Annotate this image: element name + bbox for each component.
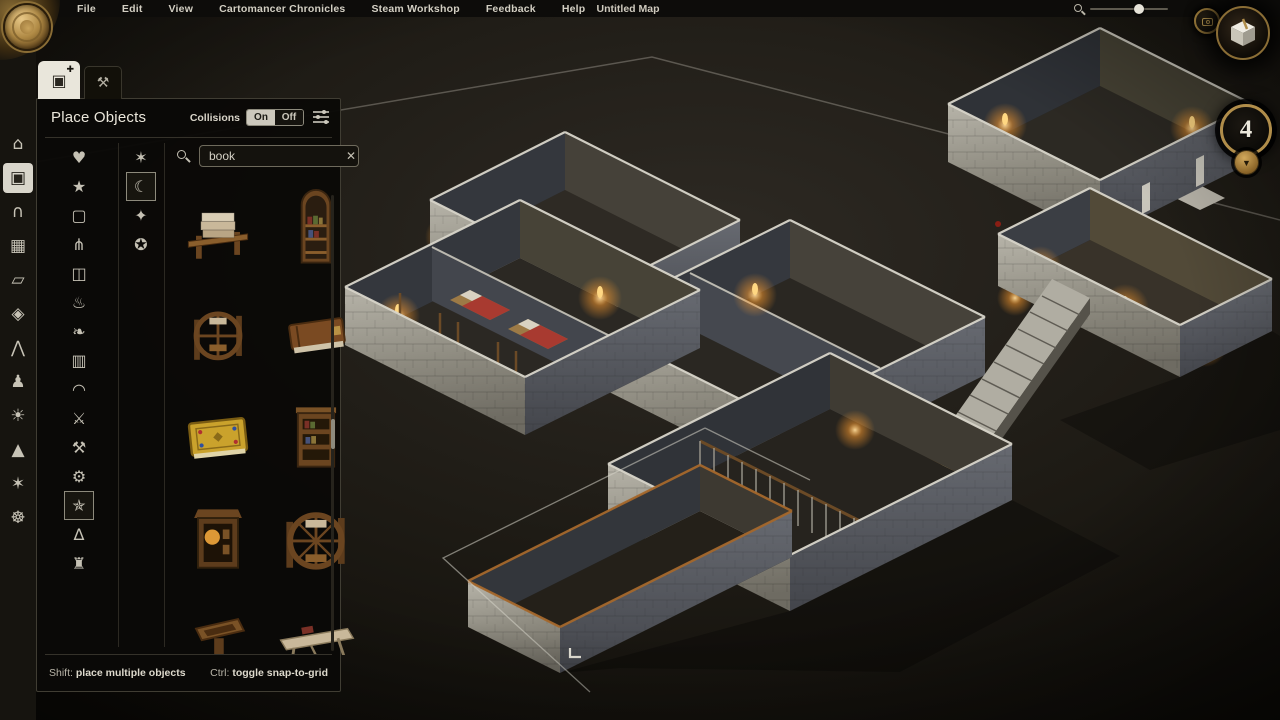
subcategory-magic-tables-icon: ✶ — [134, 148, 147, 167]
windows-tool-icon: ▦ — [10, 236, 26, 256]
chevron-down-icon: ▼ — [1242, 158, 1251, 168]
category-favorites-icon: ♥ — [72, 148, 86, 167]
category-frames[interactable]: ▢ — [64, 201, 94, 230]
category-magic[interactable]: ✯ — [64, 491, 94, 520]
divider — [45, 137, 332, 138]
object-book-wheel-large-thumbnail — [273, 497, 359, 583]
search-row: ✕ — [169, 143, 365, 171]
filter-button[interactable] — [310, 109, 332, 127]
category-treasury-icon: ▥ — [71, 351, 86, 370]
menu-item-feedback[interactable]: Feedback — [473, 0, 549, 17]
subcategory-crystal-balls[interactable]: ☾ — [126, 172, 156, 201]
category-machines-icon: ⚙ — [72, 467, 86, 486]
category-column: ♥★▢⋔◫♨❧▥◠⚔⚒⚙✯∆♜ — [47, 143, 111, 578]
compass-tool-icon: ☸ — [10, 508, 25, 528]
terrain-tool[interactable]: ▲ — [3, 435, 33, 465]
category-ruins-icon: ♜ — [72, 554, 86, 573]
place-objects-tab-icon: ▣ — [51, 71, 66, 90]
menu-item-view[interactable]: View — [156, 0, 207, 17]
category-plants-icon: ❧ — [72, 322, 85, 341]
floors-tool-icon: ▱ — [11, 270, 24, 290]
object-bookshelf-tower[interactable] — [270, 389, 362, 485]
zoom-slider-track[interactable] — [1090, 8, 1168, 10]
object-book-cabinet[interactable] — [172, 492, 264, 588]
category-new[interactable]: ★ — [64, 172, 94, 201]
category-treasury[interactable]: ▥ — [64, 346, 94, 375]
collisions-off-option[interactable]: Off — [275, 110, 303, 125]
scrollbar-thumb[interactable] — [331, 419, 335, 449]
object-book-stack-stand-thumbnail — [175, 188, 261, 274]
place-objects-panel: Place Objects Collisions On Off ♥★▢⋔◫♨❧▥… — [36, 98, 341, 692]
characters-tool-icon: ♟ — [10, 372, 25, 392]
windows-tool[interactable]: ▦ — [3, 231, 33, 261]
floor-number: 4 — [1240, 116, 1253, 144]
subcategory-magic-pedestals[interactable]: ✪ — [126, 230, 156, 259]
object-golden-tome-thumbnail — [175, 394, 261, 480]
objects-tool[interactable]: ▣ — [3, 163, 33, 193]
category-lighting[interactable]: ♨ — [64, 288, 94, 317]
terrain-tool-icon: ▲ — [11, 440, 24, 460]
subcategory-magic-frames-icon: ✦ — [134, 206, 147, 225]
menu-bar: FileEditViewCartomancer ChroniclesSteam … — [0, 0, 1280, 17]
add-icon: ✚ — [66, 65, 74, 75]
ctrl-hint: Ctrl: toggle snap-to-grid — [210, 667, 328, 679]
object-book-stack-stand[interactable] — [172, 183, 264, 279]
map-editor-app: FileEditViewCartomancer ChroniclesSteam … — [0, 0, 1280, 720]
view-cube-button[interactable] — [1216, 6, 1270, 60]
zoom-slider-knob[interactable] — [1134, 4, 1144, 14]
collisions-toggle[interactable]: On Off — [246, 109, 304, 126]
tool-sidebar: ⌂▣∩▦▱◈⋀♟☀▲✶☸ — [0, 17, 36, 720]
object-book-bench[interactable] — [270, 595, 362, 656]
category-ruins[interactable]: ♜ — [64, 549, 94, 578]
object-book-bench-thumbnail — [273, 600, 359, 656]
characters-tool[interactable]: ♟ — [3, 367, 33, 397]
floor-selector: 4 ▼ — [1220, 104, 1276, 180]
object-search-input[interactable] — [199, 145, 359, 167]
tiles-tool[interactable]: ◈ — [3, 299, 33, 329]
tab-place-objects[interactable]: ▣ ✚ — [38, 61, 80, 99]
lighting-tool-icon: ☀ — [10, 406, 25, 426]
divider — [164, 143, 165, 647]
object-grid — [169, 179, 365, 655]
floors-tool[interactable]: ▱ — [3, 265, 33, 295]
subcategory-crystal-balls-icon: ☾ — [134, 177, 148, 196]
map-title: Untitled Map — [548, 0, 708, 17]
category-butchery[interactable]: ⚔ — [64, 404, 94, 433]
object-closed-tome[interactable] — [270, 286, 362, 382]
category-illusions-icon: ∆ — [74, 525, 85, 544]
object-arched-bookcase[interactable] — [270, 183, 362, 279]
doors-tool-icon: ∩ — [12, 202, 24, 222]
hint-bar: Shift: place multiple objects Ctrl: togg… — [37, 655, 340, 691]
subcategory-column: ✶☾✦✪ — [123, 143, 159, 259]
category-new-icon: ★ — [72, 177, 86, 196]
category-illusions[interactable]: ∆ — [64, 520, 94, 549]
category-kitchen-icon: ⋔ — [72, 235, 85, 254]
object-golden-tome[interactable] — [172, 389, 264, 485]
roofs-tool-icon: ⋀ — [11, 338, 25, 358]
object-book-wheel-small-thumbnail — [175, 291, 261, 377]
floor-collapse-button[interactable]: ▼ — [1234, 150, 1259, 175]
search-icon — [1074, 4, 1082, 12]
rooms-tool[interactable]: ⌂ — [3, 129, 33, 159]
menu-item-steam-workshop[interactable]: Steam Workshop — [358, 0, 472, 17]
category-kitchen[interactable]: ⋔ — [64, 230, 94, 259]
subcategory-magic-tables[interactable]: ✶ — [126, 143, 156, 172]
category-butchery-icon: ⚔ — [72, 409, 86, 428]
objects-tool-icon: ▣ — [10, 168, 26, 188]
collisions-on-option[interactable]: On — [247, 110, 275, 125]
menu-items: FileEditViewCartomancer ChroniclesSteam … — [64, 0, 598, 17]
edit-terrain-tab-icon: ⚒ — [97, 75, 110, 91]
panel-title: Place Objects — [51, 109, 146, 126]
object-closed-tome-thumbnail — [273, 291, 359, 377]
lighting-tool[interactable]: ☀ — [3, 401, 33, 431]
category-frames-icon: ▢ — [71, 206, 86, 225]
category-favorites[interactable]: ♥ — [64, 143, 94, 172]
collisions-label: Collisions — [190, 112, 240, 124]
object-lectern-thumbnail — [175, 600, 261, 656]
search-icon — [177, 150, 186, 159]
object-bookshelf-tower-thumbnail — [273, 394, 359, 480]
logo-medallion-icon — [3, 3, 51, 51]
orientation-cube-icon — [1227, 17, 1259, 49]
category-smithy[interactable]: ⚒ — [64, 433, 94, 462]
compass-tool[interactable]: ☸ — [3, 503, 33, 533]
effects-tool-icon: ✶ — [11, 474, 25, 494]
menu-item-edit[interactable]: Edit — [109, 0, 156, 17]
menu-item-cartomancer-chronicles[interactable]: Cartomancer Chronicles — [206, 0, 358, 17]
object-book-wheel-large[interactable] — [270, 492, 362, 588]
category-fireplaces[interactable]: ◠ — [64, 375, 94, 404]
tiles-tool-icon: ◈ — [11, 304, 24, 324]
shift-hint: Shift: place multiple objects — [49, 667, 186, 679]
subcategory-magic-pedestals-icon: ✪ — [134, 235, 147, 254]
zoom-slider[interactable] — [1090, 0, 1190, 17]
panel-tabs: ▣ ✚ ⚒ — [38, 61, 122, 99]
object-arched-bookcase-thumbnail — [273, 188, 359, 274]
object-grid-scrollbar[interactable] — [331, 195, 334, 651]
category-magic-icon: ✯ — [72, 496, 85, 515]
floor-badge[interactable]: 4 — [1220, 104, 1272, 156]
category-fireplaces-icon: ◠ — [72, 380, 86, 399]
category-lighting-icon: ♨ — [72, 293, 86, 312]
subcategory-magic-frames[interactable]: ✦ — [126, 201, 156, 230]
object-book-wheel-small[interactable] — [172, 286, 264, 382]
object-lectern[interactable] — [172, 595, 264, 656]
divider — [118, 143, 119, 647]
category-furniture-icon: ◫ — [71, 264, 86, 283]
category-furniture[interactable]: ◫ — [64, 259, 94, 288]
object-book-cabinet-thumbnail — [175, 497, 261, 583]
category-machines[interactable]: ⚙ — [64, 462, 94, 491]
tab-edit-terrain[interactable]: ⚒ — [84, 66, 122, 99]
category-smithy-icon: ⚒ — [72, 438, 86, 457]
tool-list: ⌂▣∩▦▱◈⋀♟☀▲✶☸ — [0, 127, 36, 535]
clear-search-button[interactable]: ✕ — [343, 148, 359, 164]
doors-tool[interactable]: ∩ — [3, 197, 33, 227]
menu-item-file[interactable]: File — [64, 0, 109, 17]
rooms-tool-icon: ⌂ — [13, 134, 24, 154]
filter-sliders-icon — [311, 109, 331, 125]
effects-tool[interactable]: ✶ — [3, 469, 33, 499]
category-plants[interactable]: ❧ — [64, 317, 94, 346]
roofs-tool[interactable]: ⋀ — [3, 333, 33, 363]
